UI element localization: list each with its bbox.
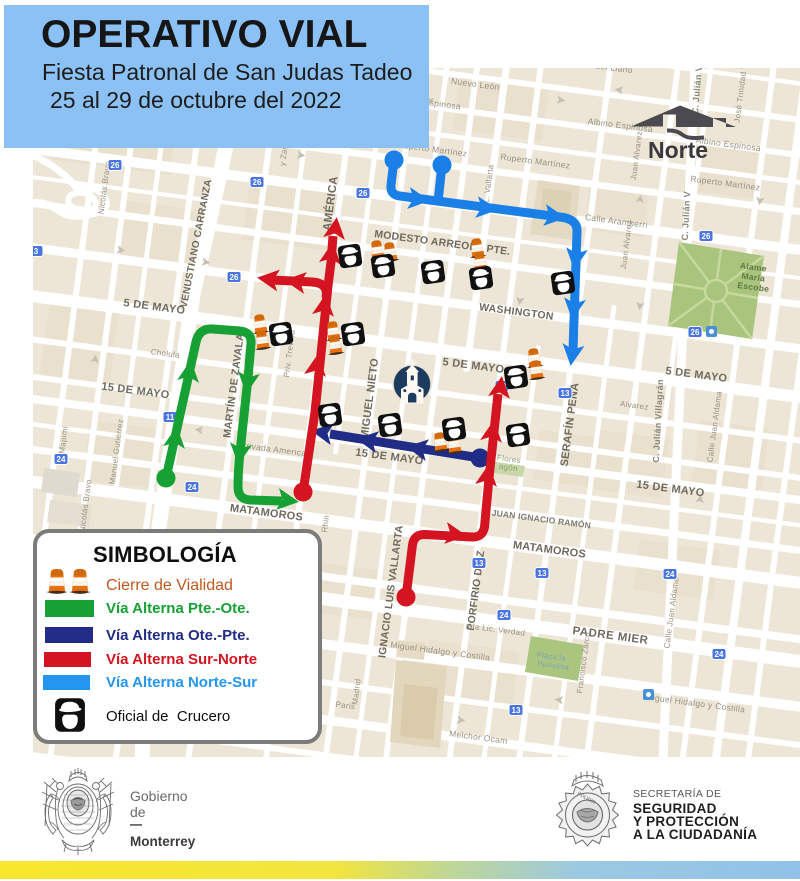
svg-text:Fiesta Patronal de San Judas T: Fiesta Patronal de San Judas Tadeo — [42, 59, 412, 85]
svg-text:3: 3 — [34, 247, 39, 256]
svg-text:26: 26 — [230, 273, 239, 282]
svg-text:26: 26 — [691, 328, 700, 337]
svg-text:SECRETARÍA DE: SECRETARÍA DE — [633, 787, 721, 800]
svg-text:Oficial de Crucero: Oficial de Crucero — [106, 708, 230, 725]
svg-text:25 al 29 de octubre del 2022: 25 al 29 de octubre del 2022 — [50, 87, 342, 113]
svg-text:24: 24 — [57, 455, 66, 464]
svg-text:Vía Alterna Ote.-Pte.: Vía Alterna Ote.-Pte. — [106, 627, 250, 644]
svg-text:26: 26 — [111, 161, 120, 170]
svg-text:13: 13 — [475, 559, 484, 568]
svg-text:11: 11 — [166, 413, 175, 422]
svg-text:Vía Alterna Pte.-Ote.: Vía Alterna Pte.-Ote. — [106, 600, 250, 617]
svg-text:24: 24 — [500, 611, 509, 620]
svg-text:Monterrey: Monterrey — [130, 834, 196, 849]
svg-text:Vía Alterna Sur-Norte: Vía Alterna Sur-Norte — [106, 651, 257, 668]
svg-text:26: 26 — [253, 178, 262, 187]
svg-text:24: 24 — [188, 483, 197, 492]
svg-text:Norte: Norte — [648, 137, 708, 163]
svg-text:OPERATIVO VIAL: OPERATIVO VIAL — [41, 13, 367, 56]
svg-text:Vía Alterna Norte-Sur: Vía Alterna Norte-Sur — [106, 674, 257, 691]
svg-text:13: 13 — [561, 389, 570, 398]
svg-text:26: 26 — [702, 232, 711, 241]
svg-text:Gobierno: Gobierno — [130, 788, 188, 804]
svg-text:A LA CIUDADANÍA: A LA CIUDADANÍA — [633, 827, 757, 842]
svg-text:26: 26 — [359, 189, 368, 198]
svg-text:24: 24 — [666, 570, 675, 579]
svg-text:Cierre de Vialidad: Cierre de Vialidad — [106, 577, 233, 594]
svg-text:de: de — [130, 804, 146, 820]
svg-text:13: 13 — [512, 706, 521, 715]
svg-text:24: 24 — [715, 650, 724, 659]
svg-text:13: 13 — [538, 569, 547, 578]
svg-text:SIMBOLOGÍA: SIMBOLOGÍA — [93, 542, 237, 567]
